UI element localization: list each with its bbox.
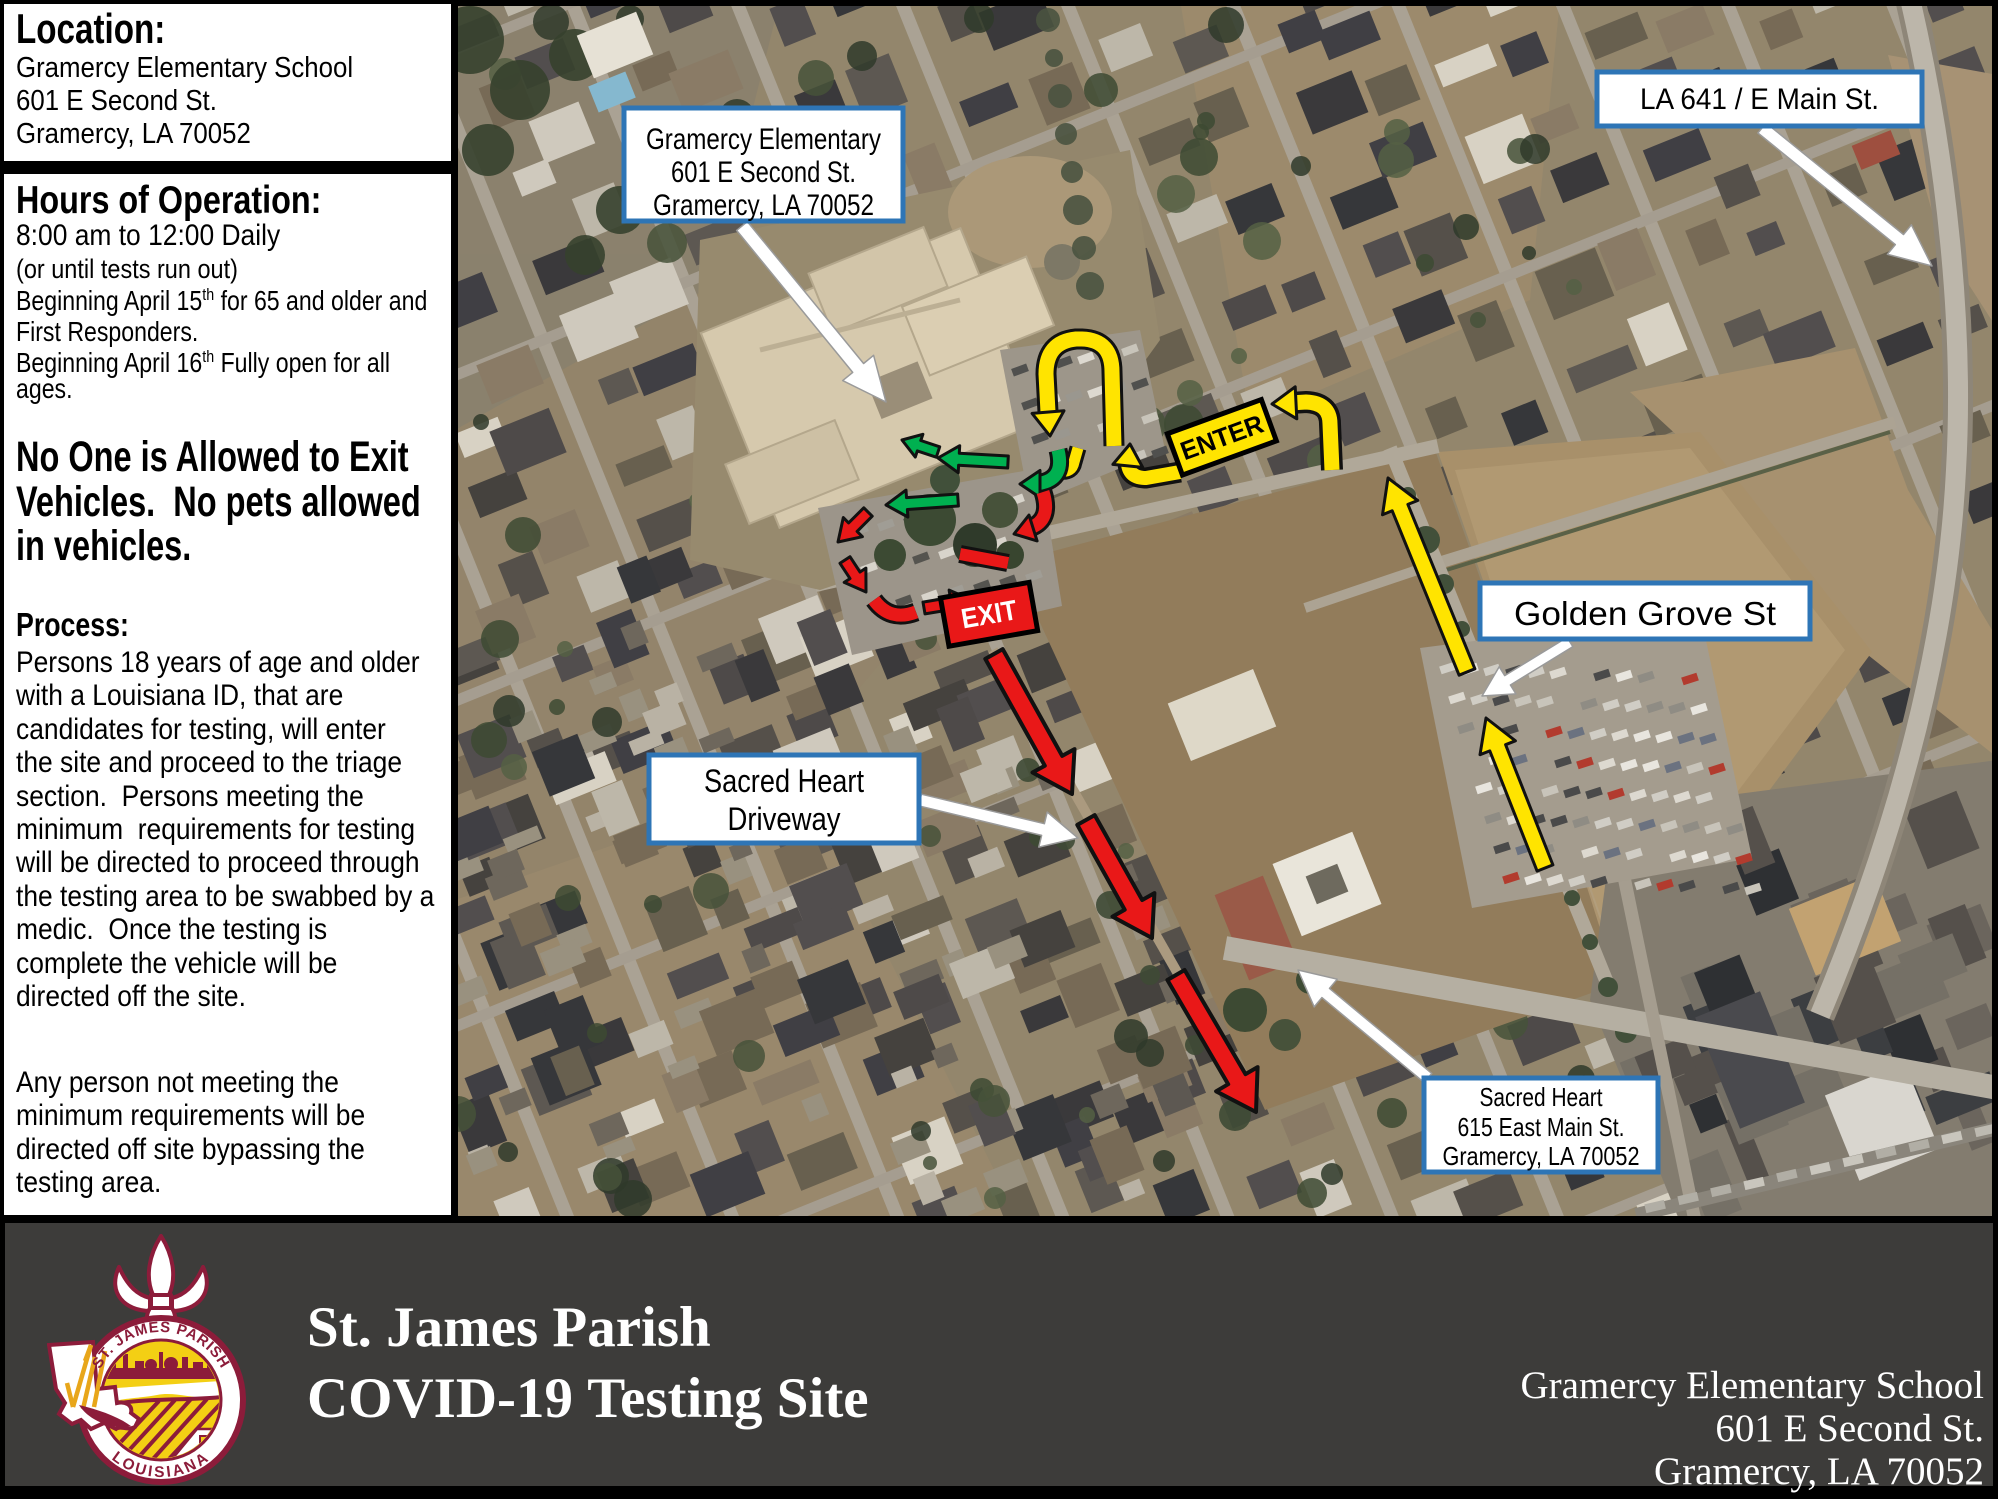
- svg-text:LA 641 / E Main St.: LA 641 / E Main St.: [1640, 83, 1879, 116]
- svg-text:601 E Second St.: 601 E Second St.: [671, 156, 856, 189]
- svg-text:Golden Grove St: Golden Grove St: [1514, 595, 1776, 632]
- svg-text:Driveway: Driveway: [728, 801, 841, 837]
- svg-text:Sacred Heart: Sacred Heart: [1480, 1082, 1604, 1112]
- svg-text:615 East Main St.: 615 East Main St.: [1458, 1112, 1625, 1142]
- svg-text:Gramercy, LA 70052: Gramercy, LA 70052: [653, 189, 874, 222]
- svg-text:Sacred Heart: Sacred Heart: [704, 763, 864, 799]
- svg-text:Gramercy Elementary: Gramercy Elementary: [646, 123, 881, 156]
- svg-text:Gramercy, LA 70052: Gramercy, LA 70052: [1443, 1141, 1640, 1171]
